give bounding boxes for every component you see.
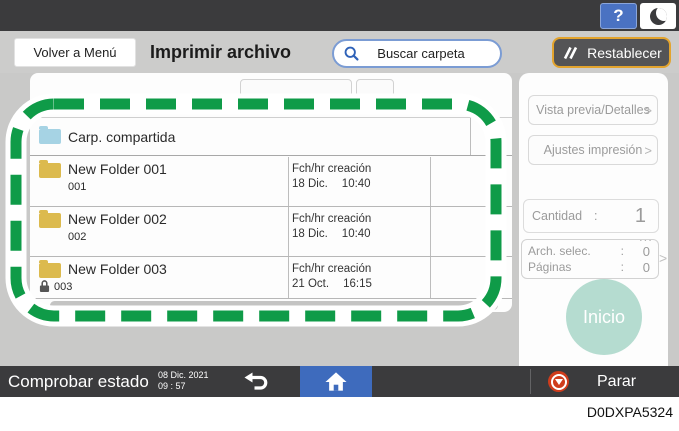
reset-icon xyxy=(561,46,579,60)
creation-time: 10:40 xyxy=(342,227,371,242)
folder-row-locked[interactable]: New Folder 003 003 Fch/hr creación 21 Oc… xyxy=(30,257,512,299)
column-divider xyxy=(430,157,431,206)
caption-area: D0DXPA5324 xyxy=(0,397,679,431)
creation-date: 18 Dic. xyxy=(292,228,328,240)
lock-icon xyxy=(39,279,50,298)
column-divider xyxy=(430,257,431,298)
folder-name: Carp. compartida xyxy=(68,118,175,156)
search-icon xyxy=(343,45,360,62)
back-arrow-icon xyxy=(243,371,270,392)
quantity-colon: : xyxy=(594,209,597,223)
folder-row[interactable]: New Folder 001 001 Fch/hr creación 18 Di… xyxy=(30,157,512,207)
folder-row-shared[interactable]: Carp. compartida xyxy=(30,117,512,156)
search-folder-label: Buscar carpeta xyxy=(360,46,500,61)
folder-id: 001 xyxy=(68,181,86,193)
time-text: 09 : 57 xyxy=(158,381,209,392)
back-to-menu-button[interactable]: Volver a Menú xyxy=(14,38,136,67)
folder-list-panel: Carp. compartida New Folder 001 001 Fch/… xyxy=(30,73,512,312)
reset-label: Restablecer xyxy=(587,45,662,61)
datetime-display: 08 Dic. 2021 09 : 57 xyxy=(158,370,209,392)
creation-time: 16:15 xyxy=(343,277,372,292)
quantity-field[interactable]: Cantidad : 1 xyxy=(523,199,659,233)
page-tab[interactable] xyxy=(356,79,394,97)
start-button[interactable]: Inicio xyxy=(566,279,642,355)
print-settings-label: Ajustes impresión xyxy=(544,143,643,157)
chevron-right-icon: > xyxy=(659,250,667,266)
creation-date: 21 Oct. xyxy=(292,278,329,290)
preview-details-label: Vista previa/Detalles xyxy=(536,103,650,117)
pages-value: 0 xyxy=(624,260,650,275)
date-text: 08 Dic. 2021 xyxy=(158,370,209,381)
reset-button[interactable]: Restablecer xyxy=(552,37,671,68)
model-code-caption: D0DXPA5324 xyxy=(587,404,673,420)
folder-icon xyxy=(39,263,61,278)
folder-icon xyxy=(39,163,61,178)
shared-folder-icon xyxy=(39,129,61,144)
bar-divider xyxy=(530,369,531,394)
creation-label: Fch/hr creación xyxy=(292,212,426,227)
printer-touchscreen: ? Volver a Menú Imprimir archivo Buscar … xyxy=(0,0,679,397)
creation-time: 10:40 xyxy=(342,177,371,192)
creation-value: 21 Oct.16:15 xyxy=(292,277,426,292)
bottom-status-bar: Comprobar estado 08 Dic. 2021 09 : 57 Pa… xyxy=(0,366,679,397)
system-top-bar: ? xyxy=(0,0,679,31)
stop-icon xyxy=(548,371,569,392)
column-divider xyxy=(470,118,471,155)
creation-datetime: Fch/hr creación 18 Dic.10:40 xyxy=(292,212,426,242)
column-divider xyxy=(288,257,289,298)
quantity-label: Cantidad xyxy=(532,209,582,223)
page-title: Imprimir archivo xyxy=(150,31,291,73)
search-folder-button[interactable]: Buscar carpeta xyxy=(332,39,502,68)
check-status-button[interactable]: Comprobar estado xyxy=(8,366,149,397)
folder-name: New Folder 003 xyxy=(68,261,167,277)
chevron-right-icon: > xyxy=(644,143,652,158)
folder-icon xyxy=(39,213,61,228)
creation-label: Fch/hr creación xyxy=(292,162,426,177)
horizontal-scrollbar[interactable] xyxy=(50,301,498,310)
creation-datetime: Fch/hr creación 21 Oct.16:15 xyxy=(292,262,426,292)
selected-files-value: 0 xyxy=(624,244,650,259)
print-settings-button[interactable]: Ajustes impresión > xyxy=(528,135,658,165)
toolbar: Volver a Menú Imprimir archivo Buscar ca… xyxy=(0,31,679,73)
sleep-mode-button[interactable] xyxy=(640,3,676,29)
folder-row[interactable]: New Folder 002 002 Fch/hr creación 18 Di… xyxy=(30,207,512,257)
help-icon: ? xyxy=(613,6,623,26)
home-icon xyxy=(325,371,347,392)
folder-id: 003 xyxy=(54,281,72,293)
creation-label: Fch/hr creación xyxy=(292,262,426,277)
pages-label: Páginas xyxy=(528,260,571,275)
column-divider xyxy=(288,207,289,256)
selection-summary[interactable]: Arch. selec. : 0 Páginas : 0 xyxy=(521,239,659,279)
creation-value: 18 Dic.10:40 xyxy=(292,177,426,192)
selected-files-row: Arch. selec. : 0 xyxy=(528,244,650,259)
creation-value: 18 Dic.10:40 xyxy=(292,227,426,242)
folder-name: New Folder 002 xyxy=(68,211,167,227)
chevron-right-icon: > xyxy=(644,103,652,118)
creation-date: 18 Dic. xyxy=(292,178,328,190)
quantity-value: 1 xyxy=(635,205,646,228)
pages-row: Páginas : 0 xyxy=(528,260,650,275)
creation-datetime: Fch/hr creación 18 Dic.10:40 xyxy=(292,162,426,192)
page-tab[interactable] xyxy=(240,79,352,97)
start-label: Inicio xyxy=(583,307,625,328)
selected-files-label: Arch. selec. xyxy=(528,244,591,259)
column-divider xyxy=(288,157,289,206)
crescent-moon-icon xyxy=(650,8,667,25)
preview-details-button[interactable]: Vista previa/Detalles > xyxy=(528,95,658,125)
folder-id: 002 xyxy=(68,231,86,243)
home-button[interactable] xyxy=(300,366,372,397)
help-button[interactable]: ? xyxy=(600,3,637,29)
stop-button[interactable]: Parar xyxy=(597,366,636,397)
folder-name: New Folder 001 xyxy=(68,161,167,177)
back-button[interactable] xyxy=(243,371,270,397)
column-divider xyxy=(430,207,431,256)
sidebar-panel: Vista previa/Detalles > Ajustes impresió… xyxy=(519,73,668,366)
